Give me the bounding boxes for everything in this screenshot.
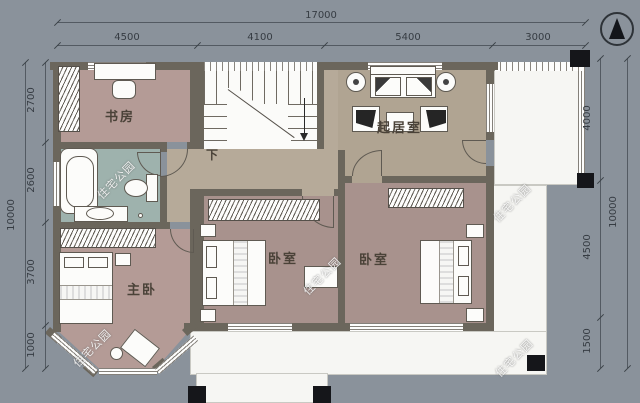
side-table-plant — [346, 72, 366, 92]
bedroom-right-window — [350, 323, 463, 331]
plant-center — [443, 79, 449, 85]
bedroom-mid-door-leaf — [333, 196, 334, 228]
dim-left-seg-3: 1000 — [26, 325, 38, 365]
dim-left-seg-2: 3700 — [26, 252, 38, 292]
column — [188, 386, 206, 403]
armchair-cushion — [356, 110, 376, 128]
wall-living-bedroom-a — [345, 176, 352, 183]
dim-top-total: 17000 — [291, 10, 351, 22]
dressing-stool — [110, 347, 123, 360]
floor-drain — [138, 213, 143, 218]
north-arrow-icon — [609, 18, 625, 39]
stair-treads-top — [204, 71, 317, 104]
wall-living-bedroom-b — [382, 176, 492, 183]
bedroom-mid-nightstand — [200, 309, 216, 322]
pillow — [88, 257, 108, 268]
dim-line — [600, 58, 601, 368]
study-desk — [94, 63, 156, 80]
column — [527, 355, 545, 371]
dim-left-seg-0: 2700 — [26, 80, 38, 120]
dim-tick — [42, 365, 49, 372]
living-side-window — [486, 84, 494, 132]
bay-window-bottom — [99, 368, 157, 375]
bedroom-mid-window — [228, 323, 292, 331]
hall-floor-master-door — [167, 196, 190, 222]
stair-treads-right — [288, 104, 317, 149]
wall-bottom-b — [292, 323, 350, 331]
bedroom-right-wardrobe — [388, 188, 464, 208]
living-label: 起居室 — [377, 117, 422, 136]
side-table-plant — [436, 72, 456, 92]
stair-arrow-head — [300, 133, 308, 141]
dim-top-seg-1: 4100 — [240, 32, 280, 44]
blanket — [439, 241, 454, 303]
bathtub — [60, 148, 98, 214]
master-label: 主卧 — [127, 279, 157, 298]
dim-tick — [624, 365, 631, 372]
stair-window — [204, 62, 317, 71]
bedroom-right-door-leaf — [381, 150, 382, 176]
sofa — [370, 66, 436, 98]
bedroom-right-nightstand — [466, 308, 484, 322]
dim-tick — [582, 19, 589, 26]
armchair-cushion — [426, 110, 446, 128]
pillow — [206, 277, 217, 299]
stair-down-label: 下 — [206, 146, 220, 163]
dim-top-seg-2: 5400 — [388, 32, 428, 44]
pillow — [458, 276, 469, 296]
column — [570, 50, 590, 67]
armchair — [352, 106, 380, 132]
north-arrow — [600, 12, 634, 46]
bathroom-sink — [86, 207, 114, 220]
dim-line — [627, 58, 628, 368]
wall-stair-right — [317, 62, 324, 149]
pillow — [64, 257, 84, 268]
dim-right-seg-1: 4500 — [582, 227, 594, 267]
dim-line — [57, 22, 585, 23]
bedroom-mid-nightstand — [200, 224, 216, 237]
blanket — [60, 285, 112, 300]
master-bed — [59, 252, 113, 324]
dim-line — [45, 62, 46, 368]
stair-arrow-line — [304, 98, 305, 134]
master-wardrobe — [60, 228, 156, 248]
study-chair — [112, 80, 136, 99]
column — [313, 386, 331, 403]
dim-right-total: 10000 — [608, 190, 620, 234]
dim-line — [57, 45, 585, 46]
wall-right-lower — [486, 166, 494, 331]
bathtub-inner — [66, 156, 94, 208]
bathroom-door-leaf — [137, 152, 161, 153]
wall-hall-bedroom-mid-a — [190, 189, 302, 196]
bedroom-right-nightstand — [466, 224, 484, 238]
dim-left-seg-1: 2600 — [26, 160, 38, 200]
sofa-cushion — [406, 77, 432, 96]
dim-right-seg-2: 1500 — [582, 321, 594, 361]
dim-tick — [22, 365, 29, 372]
dim-tick — [582, 42, 589, 49]
study-bookshelf — [58, 66, 80, 132]
dim-top-seg-0: 4500 — [107, 32, 147, 44]
column — [577, 173, 594, 188]
terrace-door-leaf — [462, 140, 486, 141]
bedroom-right-label: 卧室 — [359, 249, 389, 268]
bedroom-mid-bed — [202, 240, 266, 306]
terrace-right-top — [494, 62, 585, 185]
toilet-bowl — [124, 179, 148, 197]
plant-center — [353, 79, 359, 85]
pillow — [206, 246, 217, 268]
bedroom-mid-wardrobe — [208, 199, 320, 221]
bedroom-right-bed — [420, 240, 472, 304]
wall-study-stair — [190, 62, 204, 149]
master-door-leaf — [193, 229, 194, 253]
sofa-back-line — [371, 74, 435, 75]
wall-bedrooms-divider — [338, 150, 345, 323]
dim-top-seg-3: 3000 — [518, 32, 558, 44]
sofa-cushion — [375, 77, 401, 96]
master-nightstand — [115, 253, 131, 266]
pillow — [458, 246, 469, 266]
dim-left-total: 10000 — [6, 193, 18, 237]
dim-tick — [597, 365, 604, 372]
study-label: 书房 — [105, 106, 135, 125]
terrace-bottom-lower — [196, 373, 328, 403]
armchair — [420, 106, 448, 132]
wall-bottom-c — [463, 323, 494, 331]
bedroom-mid-label: 卧室 — [268, 248, 298, 267]
dim-right-seg-0: 4000 — [582, 98, 594, 138]
floor-plan: 下 — [0, 0, 640, 403]
blanket — [233, 241, 248, 305]
hall-floor-stair-side — [324, 62, 338, 149]
